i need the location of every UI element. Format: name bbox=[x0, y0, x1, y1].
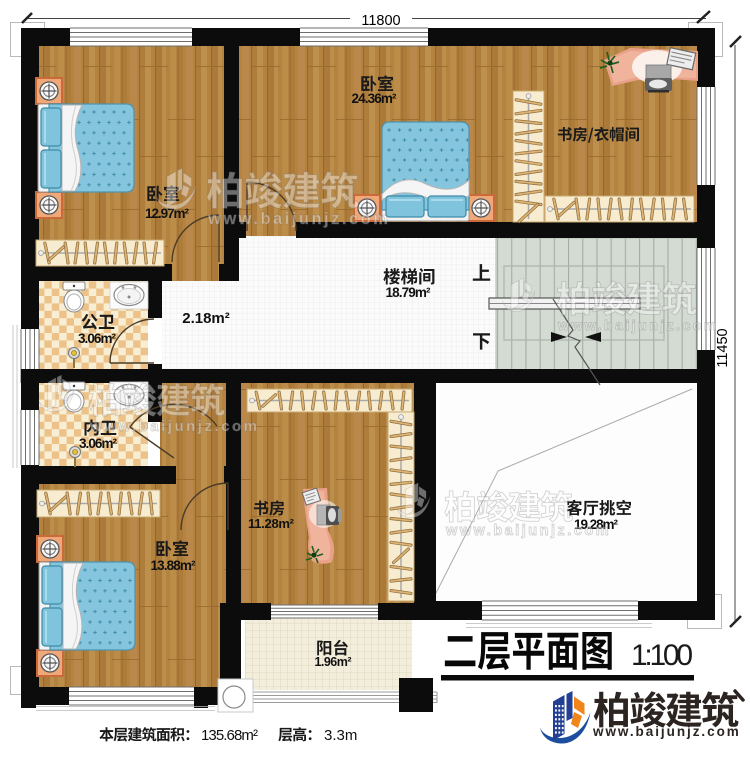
svg-text:3.06m²: 3.06m² bbox=[79, 436, 118, 451]
svg-text:www.baijunjz.com: www.baijunjz.com bbox=[89, 418, 259, 435]
svg-text:2.18m²: 2.18m² bbox=[182, 310, 230, 327]
svg-text:www.baijunjz.com: www.baijunjz.com bbox=[445, 523, 611, 539]
svg-text:www.baijunjz.com: www.baijunjz.com bbox=[592, 724, 740, 739]
svg-text:1.96m²: 1.96m² bbox=[315, 655, 352, 669]
svg-text:3.3m: 3.3m bbox=[324, 727, 357, 744]
svg-text:11800: 11800 bbox=[361, 13, 400, 29]
svg-text:www.baijunjz.com: www.baijunjz.com bbox=[557, 317, 719, 333]
svg-text:3.06m²: 3.06m² bbox=[78, 331, 117, 346]
svg-text:11450: 11450 bbox=[715, 328, 731, 367]
svg-text:24.36m²: 24.36m² bbox=[352, 91, 398, 106]
svg-text:11.28m²: 11.28m² bbox=[248, 516, 295, 531]
svg-text:www.baijunjz.com: www.baijunjz.com bbox=[207, 210, 390, 228]
svg-text:135.68m²: 135.68m² bbox=[201, 727, 258, 744]
svg-text:13.88m²: 13.88m² bbox=[151, 558, 197, 573]
svg-text:1:100: 1:100 bbox=[631, 639, 693, 672]
svg-text:18.79m²: 18.79m² bbox=[386, 285, 432, 300]
